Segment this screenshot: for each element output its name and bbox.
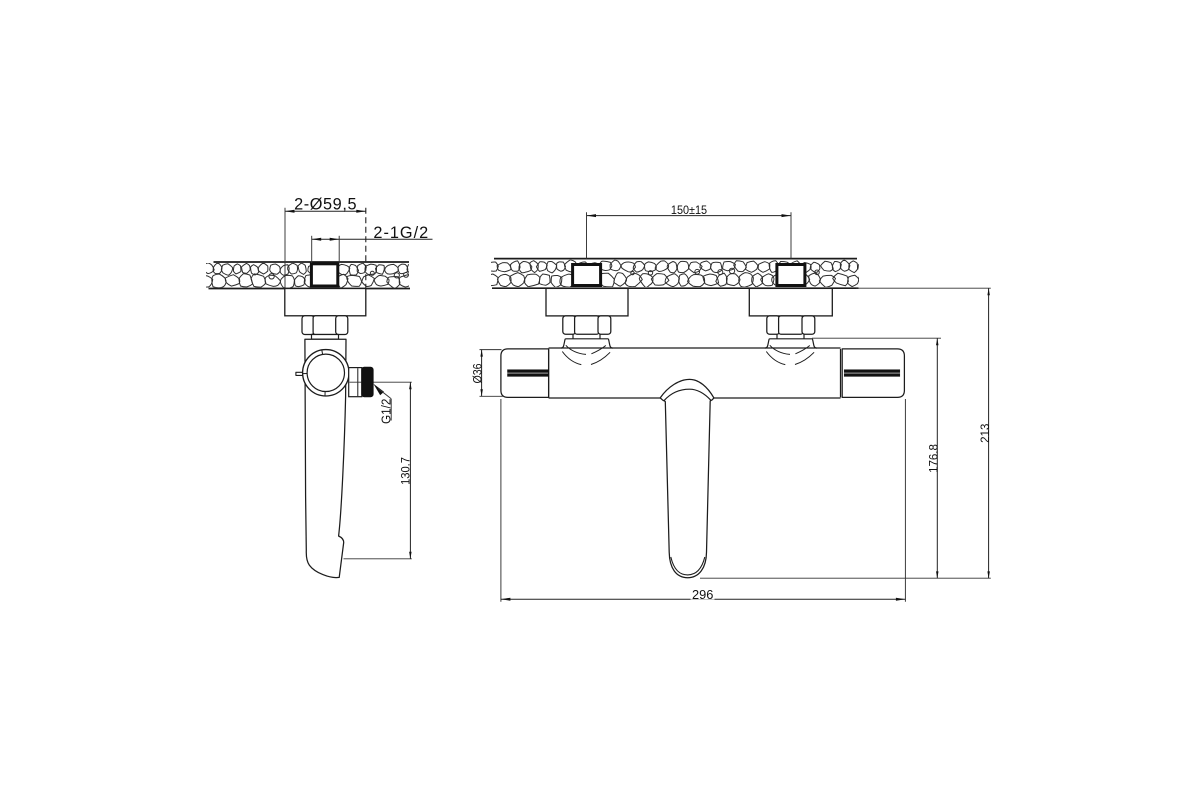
svg-text:G1/2: G1/2 xyxy=(379,398,393,424)
svg-text:176.8: 176.8 xyxy=(929,444,941,473)
svg-text:296: 296 xyxy=(692,587,713,602)
svg-text:213: 213 xyxy=(978,423,992,443)
svg-text:Ø36: Ø36 xyxy=(472,363,485,383)
svg-text:130.7: 130.7 xyxy=(400,457,412,485)
